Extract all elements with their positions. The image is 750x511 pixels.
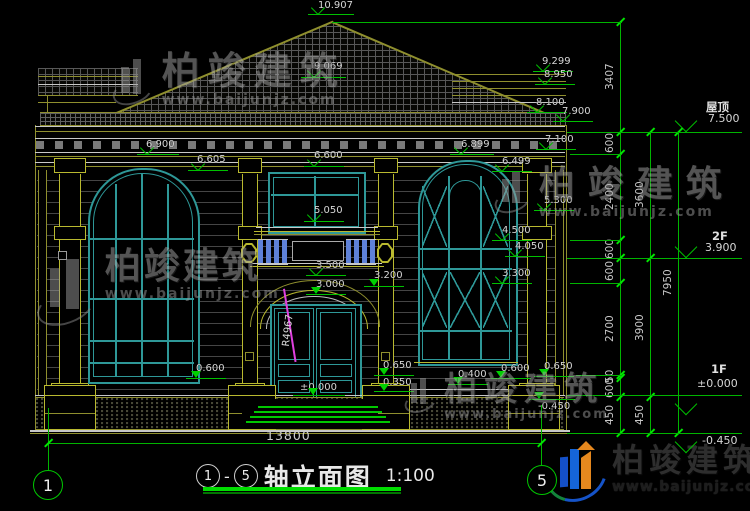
elevation-triangle — [379, 384, 389, 391]
dim-segment-value: 600 — [604, 240, 616, 258]
elevation-triangle — [496, 371, 506, 378]
dim-segment-value: 7950 — [662, 132, 674, 433]
elevation-line — [308, 14, 354, 15]
watermark-text: 柏竣建筑www.baijunjz.com — [105, 248, 280, 302]
elevation-value: -0.450 — [538, 402, 570, 412]
extension-line — [567, 395, 742, 396]
extension-line — [570, 154, 622, 155]
elevation-value: ±0.000 — [300, 383, 337, 393]
dim-segment-value: 2400 — [604, 154, 616, 240]
elevation-line — [536, 149, 576, 150]
storey-elevation-value: 7.500 — [708, 114, 740, 124]
watermark-logo-icon — [36, 248, 97, 324]
elevation-triangle — [453, 377, 463, 384]
elevation-triangle — [308, 388, 318, 395]
extension-line — [48, 408, 49, 470]
watermark-site: www.baijunjz.com — [105, 286, 280, 302]
overall-width-dim: 13800 — [266, 428, 311, 443]
extension-line — [570, 240, 622, 241]
elevation-line — [553, 121, 593, 122]
elevation-line — [535, 84, 575, 85]
elevation-triangle — [191, 371, 201, 378]
axis-bubble: 1 — [33, 470, 63, 500]
elevation-line — [301, 77, 346, 78]
elevation-triangle — [534, 392, 544, 399]
extension-line — [48, 443, 541, 444]
storey-elevation-value: ±0.000 — [697, 379, 738, 389]
extension-line — [332, 22, 622, 23]
storey-level-triangle — [675, 110, 698, 133]
dim-chain-line — [650, 132, 651, 433]
dim-segment-value: 450 — [634, 397, 646, 433]
storey-name: 1F — [711, 362, 727, 376]
extension-line — [567, 258, 742, 259]
extension-line — [567, 433, 742, 434]
elevation-line — [293, 395, 345, 396]
elevation-triangle — [369, 279, 379, 286]
elevation-line — [364, 286, 404, 287]
elevation-line — [137, 154, 179, 155]
dim-segment-value: 600 — [604, 132, 616, 154]
elevation-line — [306, 275, 346, 276]
dim-segment-value: 3900 — [634, 258, 646, 397]
watermark-site: www.baijunjz.com — [162, 92, 346, 108]
watermark: 柏竣建筑www.baijunjz.com — [36, 248, 280, 324]
dim-segment-value: 600 — [604, 258, 616, 283]
elevation-line — [492, 171, 532, 172]
elevation-line — [529, 399, 575, 400]
watermark: 柏竣建筑www.baijunjz.com — [112, 52, 346, 108]
elevation-line — [304, 221, 344, 222]
axis-bubble: 5 — [527, 465, 557, 495]
elevation-line — [374, 391, 414, 392]
storey-elevation-value: -0.450 — [702, 436, 737, 446]
elevation-line — [188, 170, 228, 171]
extension-line — [576, 375, 622, 376]
extension-line — [570, 283, 622, 284]
watermark-logo-icon — [494, 166, 531, 212]
elevation-line — [505, 256, 545, 257]
elevation-line — [448, 384, 488, 385]
elevation-line — [492, 283, 532, 284]
dim-chain-line — [620, 22, 621, 433]
elevation-line — [186, 378, 226, 379]
watermark-logo-icon — [112, 52, 154, 104]
dim-segment-value: 3407 — [604, 22, 616, 132]
elevation-line — [306, 294, 346, 295]
dim-chain-line — [678, 132, 679, 433]
watermark-site: www.baijunjz.com — [444, 407, 609, 422]
extension-line — [567, 132, 742, 133]
elevation-triangle — [379, 368, 389, 375]
extension-line — [541, 405, 542, 465]
dim-segment-value: 3600 — [634, 132, 646, 258]
elevation-line — [534, 376, 574, 377]
elevation-line — [491, 378, 531, 379]
elevation-line — [450, 154, 494, 155]
elevation-triangle — [539, 369, 549, 376]
watermark-brand: 柏竣建筑 — [105, 248, 280, 286]
dim-segment-value: 450 — [604, 397, 616, 433]
elevation-drawing-canvas: R4967 1 - 5 轴立面图 1:100 柏竣建筑 — [0, 0, 750, 511]
elevation-line — [534, 210, 574, 211]
watermark: 柏竣建筑www.baijunjz.com — [404, 372, 609, 422]
storey-elevation-value: 3.900 — [705, 243, 737, 253]
elevation-line — [304, 166, 344, 167]
elevation-triangle — [311, 287, 321, 294]
elevation-line — [374, 375, 414, 376]
dim-segment-value: 2700 — [604, 283, 616, 375]
